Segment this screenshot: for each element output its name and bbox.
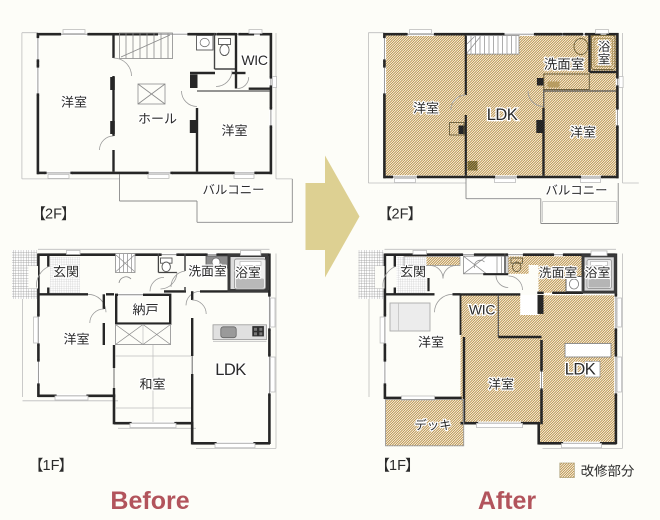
svg-text:WIC: WIC [469,302,496,318]
svg-text:1F: 1F [389,458,406,474]
svg-text:LDK: LDK [565,361,596,379]
svg-text:LDK: LDK [215,361,246,379]
svg-text:1F: 1F [43,458,60,474]
svg-text:Before: Before [110,487,189,515]
svg-text:LDK: LDK [487,106,518,124]
svg-text:WIC: WIC [241,52,268,68]
svg-text:2F: 2F [45,207,62,223]
svg-text:After: After [478,487,537,515]
svg-text:2F: 2F [392,207,409,223]
